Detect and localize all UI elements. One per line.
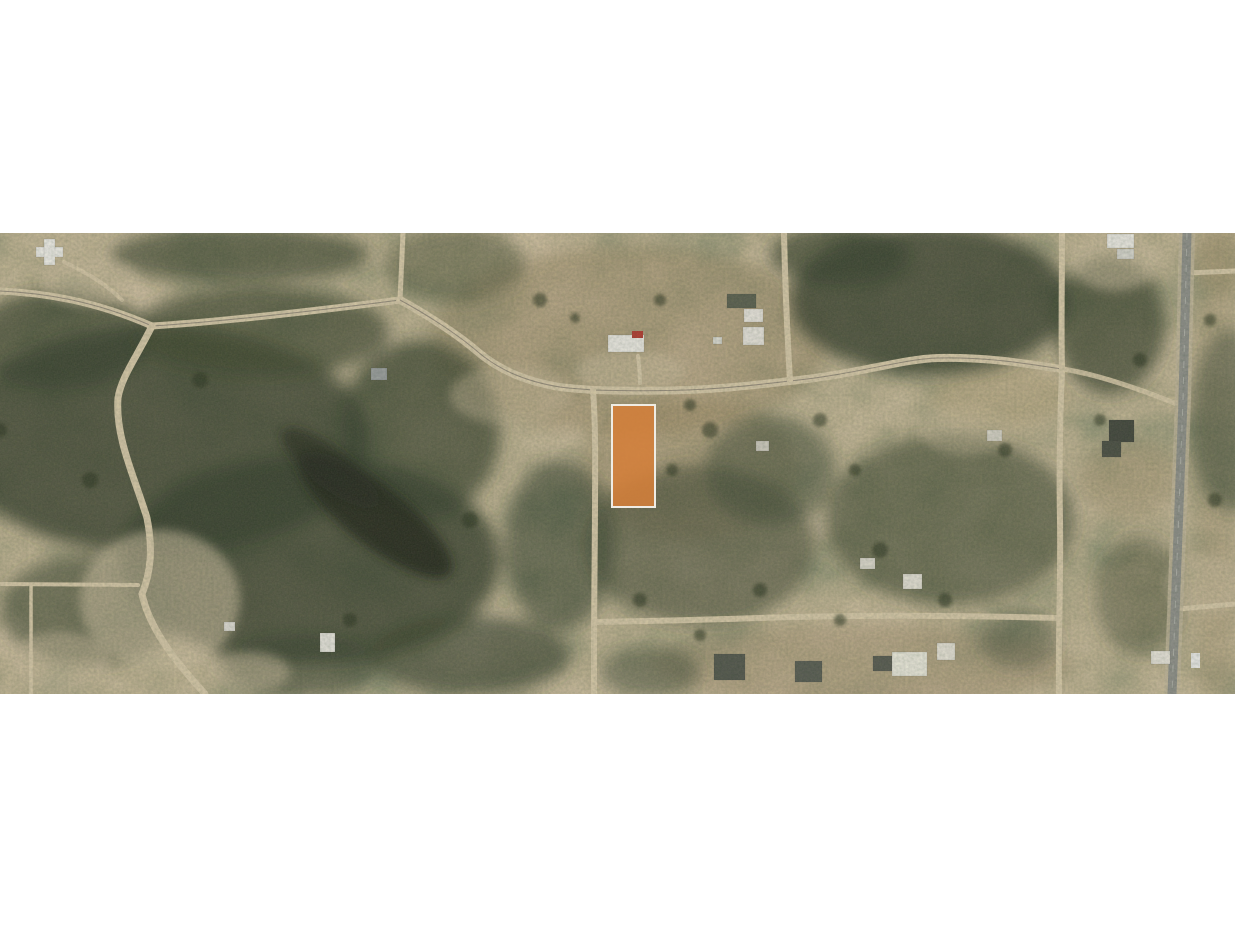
letterbox-bottom xyxy=(0,694,1235,926)
screenshot-root: { "page": { "background_color": "#ffffff… xyxy=(0,0,1235,926)
aerial-photo xyxy=(0,233,1235,694)
aerial-photo-svg xyxy=(0,233,1235,694)
letterbox-top xyxy=(0,0,1235,233)
highlighted-parcel xyxy=(612,405,655,507)
